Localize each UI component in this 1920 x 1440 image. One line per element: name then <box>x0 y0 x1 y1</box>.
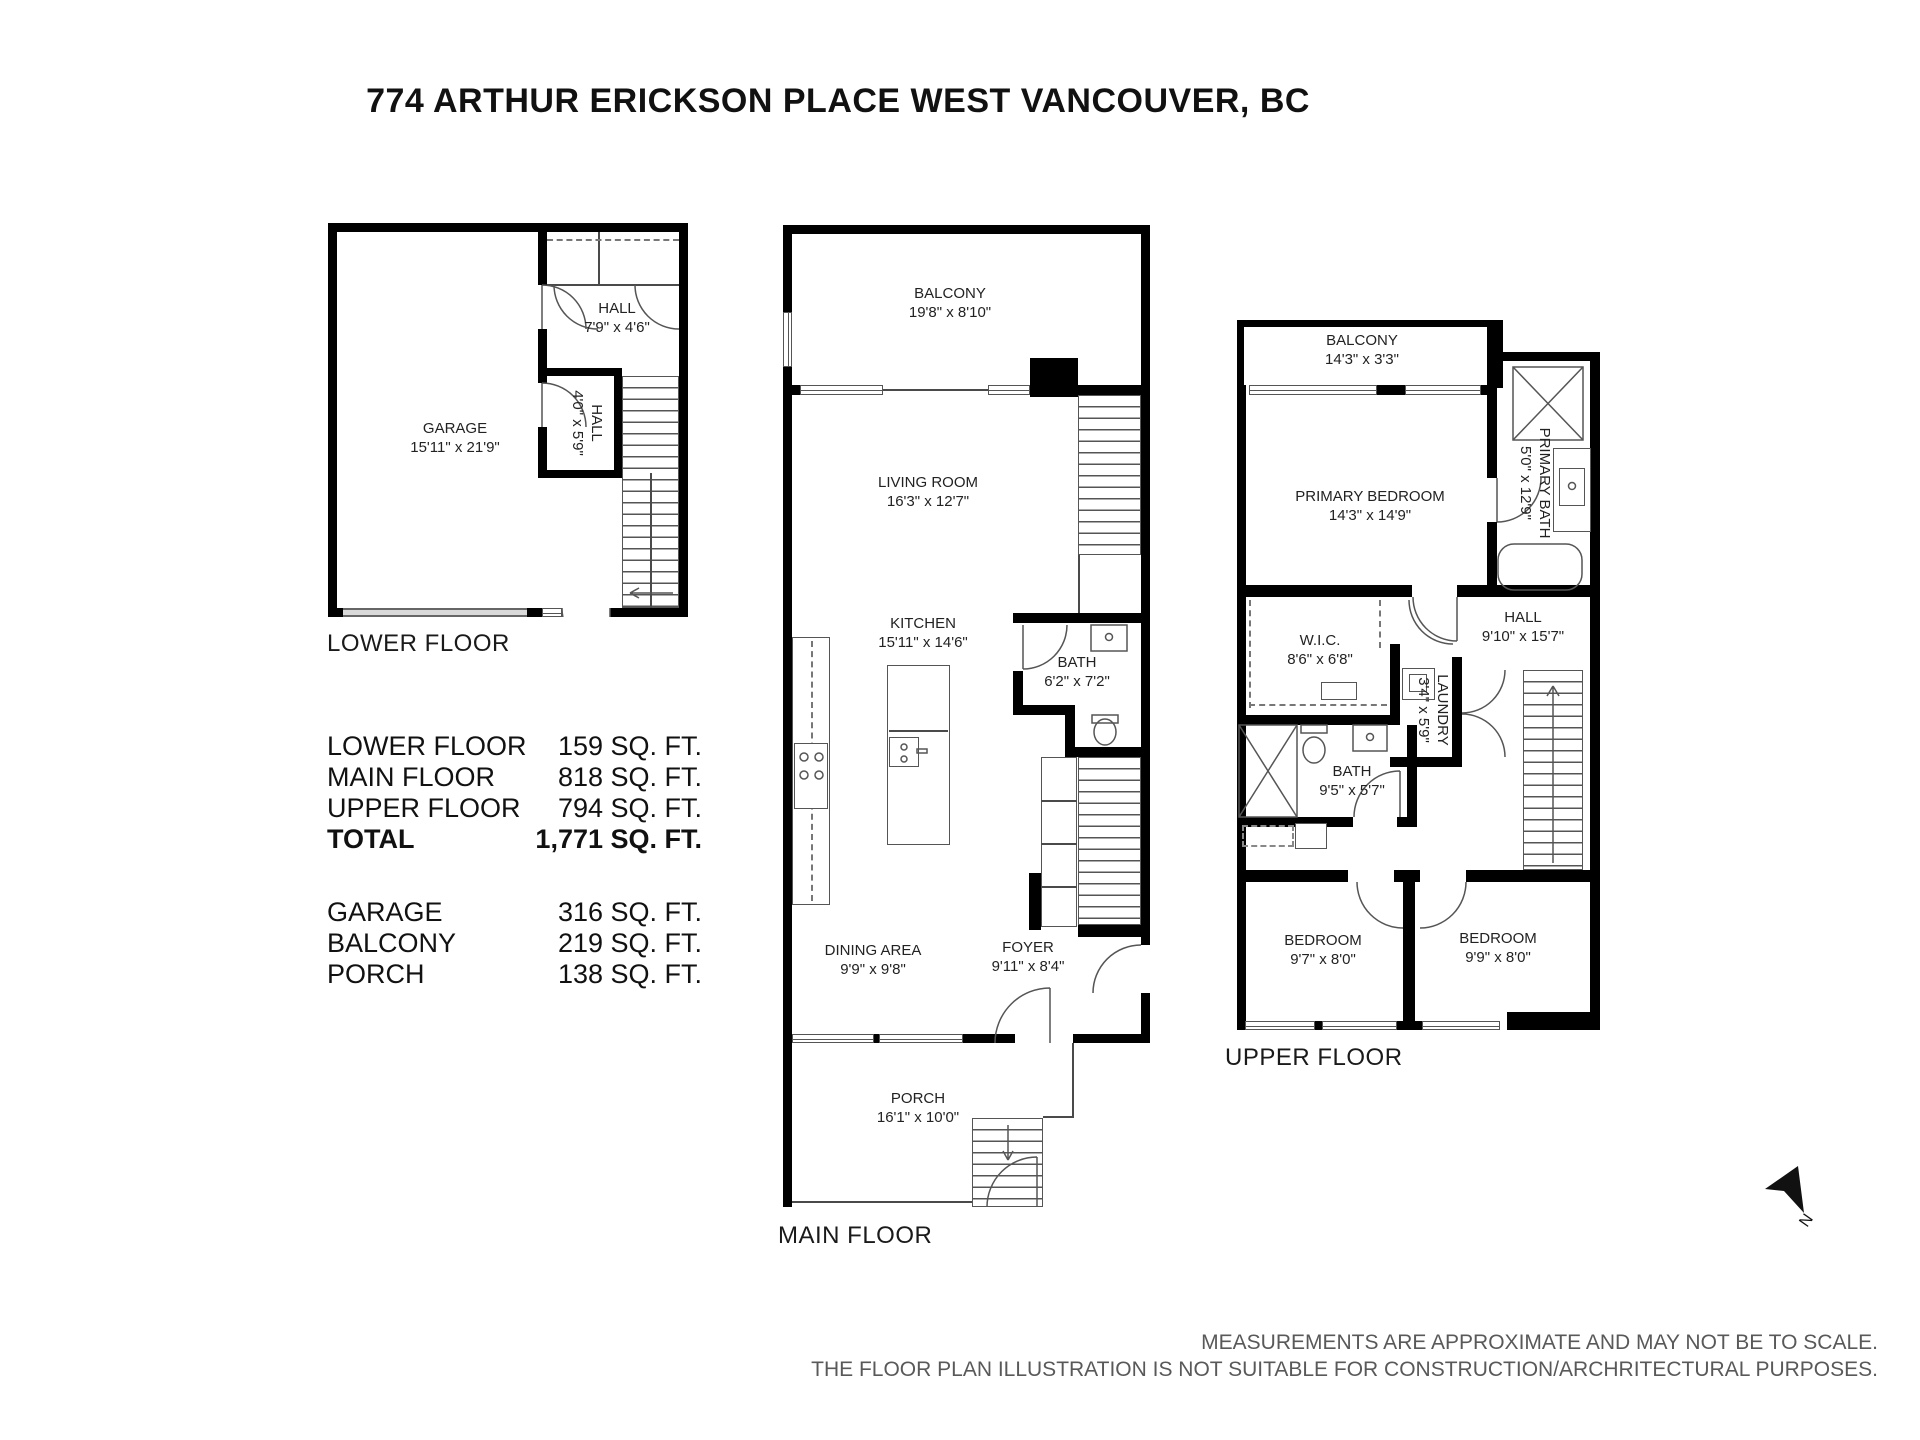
north-label: N <box>1796 1211 1817 1230</box>
room-name: BATH <box>1044 653 1110 672</box>
table-group-other: GARAGE 316 SQ. FT. BALCONY 219 SQ. FT. P… <box>327 897 702 990</box>
room-label-bath: BATH 6'2" x 7'2" <box>1044 653 1110 691</box>
foyer-door-arc <box>995 988 1050 1043</box>
burner <box>815 771 823 779</box>
main-floor-plan: BALCONY 19'8" x 8'10" LIVING ROOM 16'3" … <box>783 225 1150 1207</box>
disclaimer-line-2: THE FLOOR PLAN ILLUSTRATION IS NOT SUITA… <box>811 1356 1878 1383</box>
page-title: 774 ARTHUR ERICKSON PLACE WEST VANCOUVER… <box>0 82 1676 121</box>
north-arrow: N <box>1752 1158 1842 1248</box>
room-name: DINING AREA <box>825 941 922 960</box>
row-value: 138 SQ. FT. <box>558 959 702 990</box>
table-row: UPPER FLOOR 794 SQ. FT. <box>327 793 702 824</box>
room-name: HALL <box>584 299 650 318</box>
room-dims: 15'11" x 14'6" <box>878 633 968 652</box>
stair-direction-arrow <box>1547 686 1559 863</box>
room-label-laundry: LAUNDRY 3'4" x 5'9" <box>1414 674 1452 745</box>
room-dims: 9'5" x 5'7" <box>1319 781 1385 800</box>
row-label: UPPER FLOOR <box>327 793 521 824</box>
burner <box>815 753 823 761</box>
room-name: PRIMARY BATH <box>1535 428 1554 539</box>
closet-door-arc <box>1462 714 1505 757</box>
bedroom-door-arc <box>1357 882 1403 928</box>
room-name: HALL <box>587 390 606 456</box>
row-label: MAIN FLOOR <box>327 762 495 793</box>
room-label-balcony: BALCONY 19'8" x 8'10" <box>909 284 991 322</box>
table-row: MAIN FLOOR 818 SQ. FT. <box>327 762 702 793</box>
room-name: W.I.C. <box>1287 631 1353 650</box>
sink <box>1353 725 1387 751</box>
row-value: 794 SQ. FT. <box>558 793 702 824</box>
table-row: LOWER FLOOR 159 SQ. FT. <box>327 731 702 762</box>
room-dims: 8'6" x 6'8" <box>1287 650 1353 669</box>
row-value: 159 SQ. FT. <box>558 731 702 762</box>
main-floor-overlay <box>783 225 1150 1207</box>
room-name: BALCONY <box>909 284 991 303</box>
room-dims: 14'3" x 14'9" <box>1295 506 1444 525</box>
side-door-arc <box>1093 945 1141 993</box>
room-dims: 9'9" x 8'0" <box>1459 948 1537 967</box>
row-value: 818 SQ. FT. <box>558 762 702 793</box>
room-name: KITCHEN <box>878 614 968 633</box>
north-arrow-shape <box>1765 1166 1804 1213</box>
room-label-living-room: LIVING ROOM 16'3" x 12'7" <box>878 473 978 511</box>
row-value: 1,771 SQ. FT. <box>535 824 702 855</box>
room-name: FOYER <box>992 938 1065 957</box>
room-label-foyer: FOYER 9'11" x 8'4" <box>992 938 1065 976</box>
room-label-bedroom-left: BEDROOM 9'7" x 8'0" <box>1284 931 1362 969</box>
room-name: LIVING ROOM <box>878 473 978 492</box>
table-row-total: TOTAL 1,771 SQ. FT. <box>327 824 702 855</box>
room-name: BALCONY <box>1325 331 1399 350</box>
room-dims: 16'1" x 10'0" <box>877 1108 959 1127</box>
room-name: BEDROOM <box>1284 931 1362 950</box>
room-name: GARAGE <box>410 419 500 438</box>
room-dims: 5'0" x 12'9" <box>1516 428 1535 539</box>
main-floor-caption: MAIN FLOOR <box>778 1222 932 1250</box>
room-label-wic: W.I.C. 8'6" x 6'8" <box>1287 631 1353 669</box>
room-label-bath: BATH 9'5" x 5'7" <box>1319 762 1385 800</box>
disclaimer-line-1: MEASUREMENTS ARE APPROXIMATE AND MAY NOT… <box>811 1329 1878 1356</box>
burner <box>800 771 808 779</box>
burner <box>800 753 808 761</box>
lower-floor-plan: GARAGE 15'11" x 21'9" HALL 7'9" x 4'6" H… <box>328 223 688 617</box>
room-dims: 3'4" x 5'9" <box>1414 674 1433 745</box>
room-name: LAUNDRY <box>1433 674 1452 745</box>
room-label-bedroom-right: BEDROOM 9'9" x 8'0" <box>1459 929 1537 967</box>
row-value: 219 SQ. FT. <box>558 928 702 959</box>
sink-drain <box>1569 483 1576 490</box>
room-label-balcony: BALCONY 14'3" x 3'3" <box>1325 331 1399 369</box>
room-label-garage: GARAGE 15'11" x 21'9" <box>410 419 500 457</box>
table-row: PORCH 138 SQ. FT. <box>327 959 702 990</box>
disclaimer: MEASUREMENTS ARE APPROXIMATE AND MAY NOT… <box>811 1329 1878 1383</box>
wic-door-arc <box>1409 600 1453 644</box>
floor-plan-page: 774 ARTHUR ERICKSON PLACE WEST VANCOUVER… <box>0 0 1920 1440</box>
porch-door-arc <box>987 1157 1037 1207</box>
room-label-hall-upper: HALL 7'9" x 4'6" <box>584 299 650 337</box>
room-label-hall: HALL 9'10" x 15'7" <box>1482 608 1564 646</box>
room-label-primary-bath: PRIMARY BATH 5'0" x 12'9" <box>1516 428 1554 539</box>
door-arc <box>542 285 586 329</box>
row-label: PORCH <box>327 959 425 990</box>
closet-door-arc <box>1462 670 1505 713</box>
room-label-hall-lower: HALL 4'0" x 5'9" <box>568 390 606 456</box>
lower-floor-overlay <box>328 223 688 617</box>
toilet-tank <box>1301 725 1327 733</box>
table-row: GARAGE 316 SQ. FT. <box>327 897 702 928</box>
room-dims: 15'11" x 21'9" <box>410 438 500 457</box>
sink-drain <box>1367 734 1374 741</box>
row-label: BALCONY <box>327 928 456 959</box>
room-label-porch: PORCH 16'1" x 10'0" <box>877 1089 959 1127</box>
room-dims: 9'7" x 8'0" <box>1284 950 1362 969</box>
row-label: GARAGE <box>327 897 443 928</box>
island-knob <box>901 744 907 750</box>
room-label-kitchen: KITCHEN 15'11" x 14'6" <box>878 614 968 652</box>
room-label-dining-area: DINING AREA 9'9" x 9'8" <box>825 941 922 979</box>
area-table: LOWER FLOOR 159 SQ. FT. MAIN FLOOR 818 S… <box>327 731 702 990</box>
entry-door-arc <box>562 608 610 617</box>
room-dims: 14'3" x 3'3" <box>1325 350 1399 369</box>
sink-drain <box>1106 634 1113 641</box>
room-dims: 7'9" x 4'6" <box>584 318 650 337</box>
steps-arrow <box>1003 1125 1013 1160</box>
upper-floor-caption: UPPER FLOOR <box>1225 1044 1403 1072</box>
row-label: TOTAL <box>327 824 415 855</box>
room-dims: 9'10" x 15'7" <box>1482 627 1564 646</box>
stair-direction-arrow <box>630 588 673 598</box>
room-name: BATH <box>1319 762 1385 781</box>
room-name: PORCH <box>877 1089 959 1108</box>
upper-floor-plan: BALCONY 14'3" x 3'3" PRIMARY BEDROOM 14'… <box>1237 318 1600 1030</box>
island-handle <box>917 749 927 753</box>
bedroom-door-arc <box>1420 882 1466 928</box>
room-name: HALL <box>1482 608 1564 627</box>
toilet-bowl <box>1303 737 1325 763</box>
room-label-primary-bedroom: PRIMARY BEDROOM 14'3" x 14'9" <box>1295 487 1444 525</box>
bedroom-door-arc <box>1413 597 1457 641</box>
room-dims: 19'8" x 8'10" <box>909 303 991 322</box>
bathtub <box>1498 544 1582 590</box>
room-dims: 4'0" x 5'9" <box>568 390 587 456</box>
table-row: BALCONY 219 SQ. FT. <box>327 928 702 959</box>
row-label: LOWER FLOOR <box>327 731 527 762</box>
room-dims: 16'3" x 12'7" <box>878 492 978 511</box>
room-name: BEDROOM <box>1459 929 1537 948</box>
lower-floor-caption: LOWER FLOOR <box>327 630 510 658</box>
island-knob <box>901 756 907 762</box>
sink <box>1091 625 1127 651</box>
room-dims: 9'9" x 9'8" <box>825 960 922 979</box>
room-name: PRIMARY BEDROOM <box>1295 487 1444 506</box>
row-value: 316 SQ. FT. <box>558 897 702 928</box>
room-dims: 6'2" x 7'2" <box>1044 672 1110 691</box>
room-dims: 9'11" x 8'4" <box>992 957 1065 976</box>
